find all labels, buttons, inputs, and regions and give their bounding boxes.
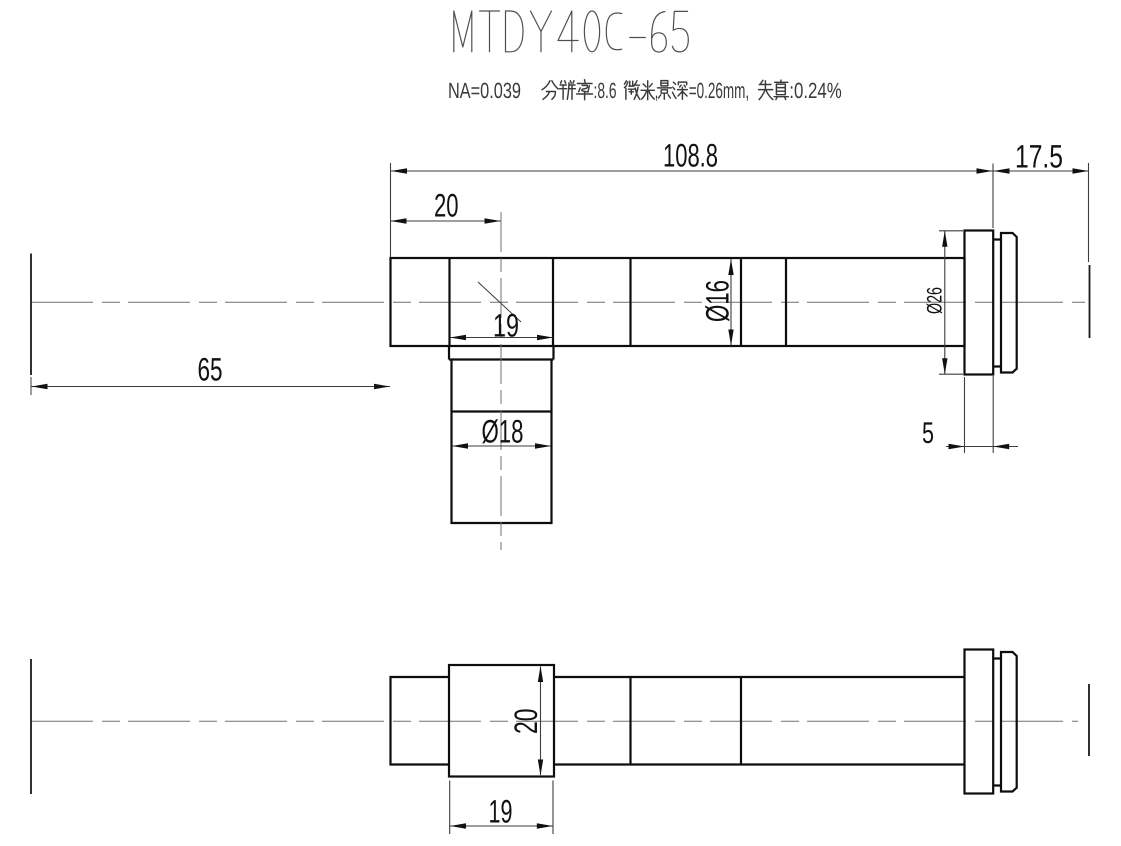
svg-text:,: , <box>655 78 659 103</box>
svg-text:20: 20 <box>508 709 544 735</box>
svg-text:108.8: 108.8 <box>663 138 718 174</box>
svg-text:Ø18: Ø18 <box>482 414 524 450</box>
svg-text:5: 5 <box>922 417 934 450</box>
svg-text:19: 19 <box>493 308 519 344</box>
svg-text:Ø26: Ø26 <box>924 287 947 314</box>
svg-text:NA=0.039: NA=0.039 <box>448 78 521 103</box>
svg-text::0.24%: :0.24% <box>789 78 842 103</box>
svg-text:65: 65 <box>198 352 223 388</box>
svg-text:17.5: 17.5 <box>1015 139 1063 175</box>
svg-text:19: 19 <box>489 794 513 830</box>
svg-text:Ø16: Ø16 <box>700 280 736 322</box>
svg-text:20: 20 <box>434 188 459 224</box>
svg-text::8.6: :8.6 <box>594 78 617 103</box>
svg-text:=0.26mm,: =0.26mm, <box>689 78 750 103</box>
